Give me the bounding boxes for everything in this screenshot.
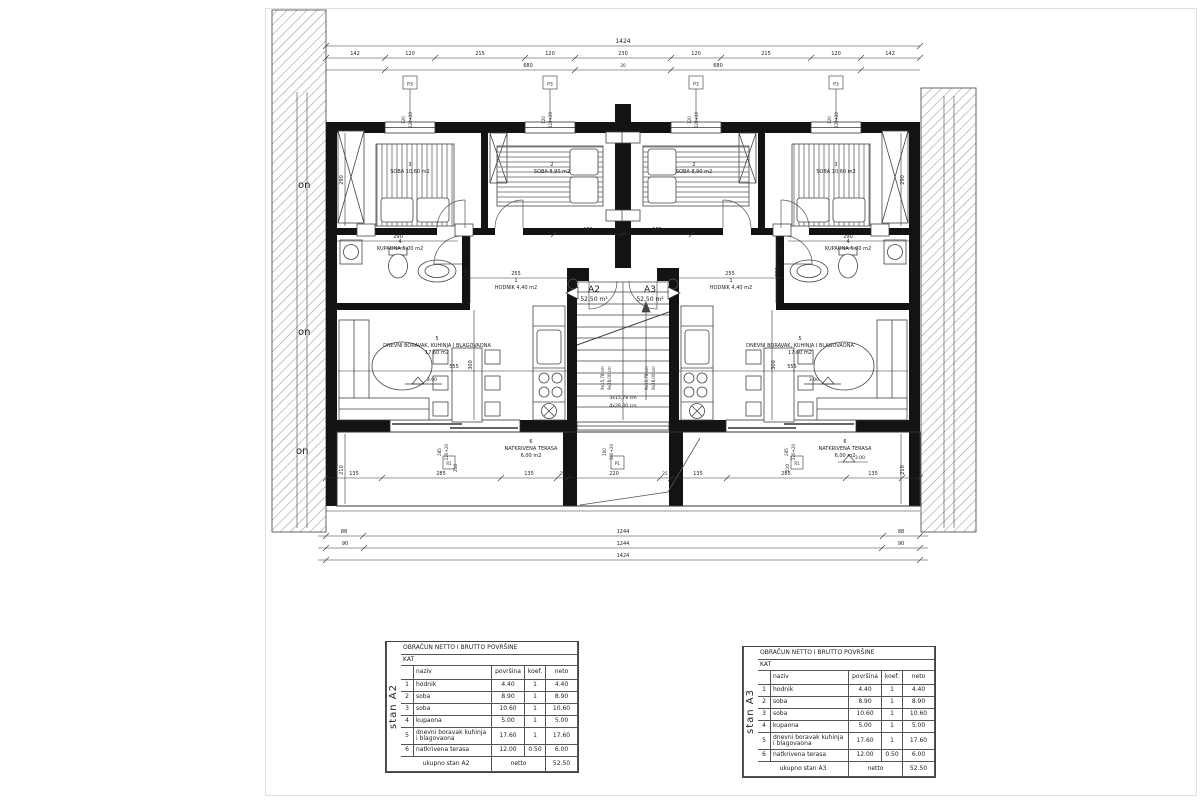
table-total-value: 52.50 bbox=[546, 757, 578, 772]
table-side-label: stan A2 bbox=[386, 642, 401, 772]
table-floor: KAT bbox=[758, 660, 935, 671]
col-neto: neto bbox=[546, 666, 578, 680]
col-neto: neto bbox=[903, 671, 935, 685]
table-title: OBRAČUN NETTO I BRUTTO POVRŠINE bbox=[758, 647, 935, 660]
table-floor: KAT bbox=[401, 655, 578, 666]
table-side-label: stan A3 bbox=[743, 647, 758, 777]
drawing-sheet: on on on bbox=[0, 0, 1200, 801]
area-table-a2: stan A2 OBRAČUN NETTO I BRUTTO POVRŠINE … bbox=[385, 641, 579, 773]
table-total-label: ukupno stan A2 bbox=[401, 757, 492, 772]
area-table-a3: stan A3 OBRAČUN NETTO I BRUTTO POVRŠINE … bbox=[742, 646, 936, 778]
col-povrsina: površina bbox=[492, 666, 525, 680]
col-naziv: naziv bbox=[771, 671, 849, 685]
col-koef: koef. bbox=[525, 666, 546, 680]
col-naziv: naziv bbox=[414, 666, 492, 680]
table-total-label: ukupno stan A3 bbox=[758, 762, 849, 777]
col-koef: koef. bbox=[882, 671, 903, 685]
table-total-value: 52.50 bbox=[903, 762, 935, 777]
col-povrsina: površina bbox=[849, 671, 882, 685]
table-title: OBRAČUN NETTO I BRUTTO POVRŠINE bbox=[401, 642, 578, 655]
